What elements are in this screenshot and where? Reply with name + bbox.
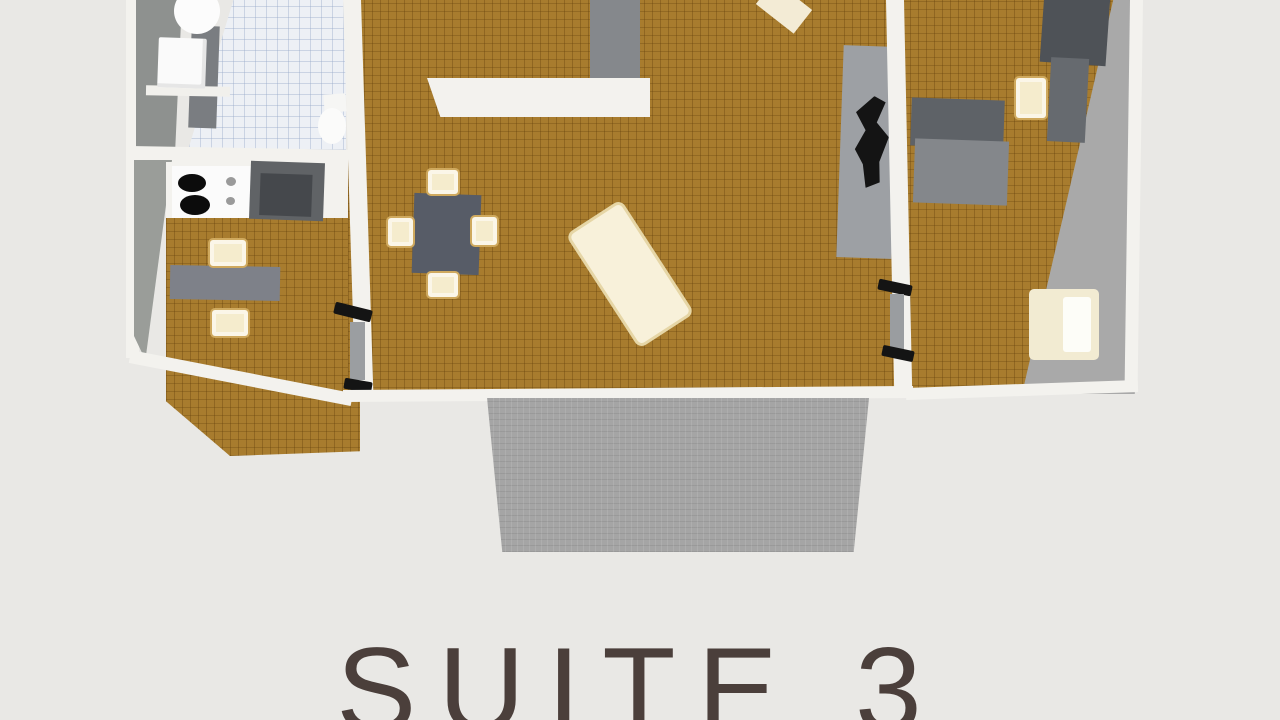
dining-chair-icon xyxy=(426,271,460,299)
stove-burner-icon xyxy=(180,195,210,215)
dining-chair-icon xyxy=(426,168,460,196)
desk-chair-icon xyxy=(208,238,248,268)
floorplan-scene: SUITE 3 xyxy=(0,0,1280,720)
wardrobe-icon xyxy=(1047,57,1089,143)
stove-knob-icon xyxy=(226,177,236,186)
toilet-bowl-icon xyxy=(318,108,346,144)
bathroom xyxy=(130,0,365,165)
refrigerator-door xyxy=(259,173,312,217)
desk-icon xyxy=(170,265,281,301)
door-leaf xyxy=(890,294,904,352)
floorplan xyxy=(130,0,1146,560)
stove-knob-icon xyxy=(226,197,235,205)
partition-wall xyxy=(427,78,650,117)
stove-icon xyxy=(172,166,252,218)
dining-chair-icon xyxy=(470,215,499,247)
desk-chair-icon xyxy=(210,308,250,338)
stove-burner-icon xyxy=(178,174,206,192)
armchair-cushion xyxy=(1063,297,1091,352)
armchair-icon xyxy=(1029,289,1099,360)
bedroom-chair-icon xyxy=(1014,76,1048,120)
bed-icon xyxy=(913,138,1009,205)
dining-chair-icon xyxy=(386,216,415,248)
door-leaf xyxy=(350,322,365,380)
balcony xyxy=(487,398,869,552)
partition-wall-shadow xyxy=(590,0,640,80)
refrigerator-icon xyxy=(249,161,325,222)
suite-title: SUITE 3 xyxy=(0,630,1280,720)
kitchen-wood-floor xyxy=(166,218,360,456)
washing-machine-icon xyxy=(157,37,207,89)
